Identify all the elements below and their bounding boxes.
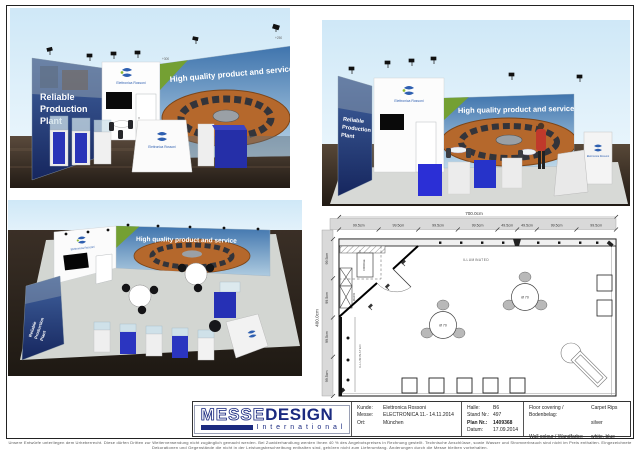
- brand-name: Elettronica Rossoni: [394, 99, 423, 103]
- rack-label: RACK: [352, 293, 356, 301]
- plan-dimensions-top: 700.0cm 99.5cm 99.5cm 99.5cm 99.5cm 49.5…: [330, 211, 618, 232]
- footer-disclaimer: Unsere Entwürfe unterliegen dem Urheberr…: [0, 440, 640, 450]
- render-front-view: Reliable Production Plant Elettronica Ro…: [322, 18, 630, 206]
- logo-text-design: DESIGN: [265, 407, 333, 423]
- plannr-value: 1409368: [493, 420, 512, 427]
- render-birdseye-view: High quality product and service Elettro…: [8, 196, 302, 376]
- monitor: [380, 114, 404, 130]
- logo-bar: [201, 425, 253, 430]
- plan-walls: [339, 239, 616, 396]
- brand-name: Elettronica Rossoni: [148, 145, 176, 149]
- logo-text-messe: MESSE: [201, 407, 266, 423]
- svg-text:99.5cm: 99.5cm: [432, 224, 444, 228]
- illuminated-top-label: ILLUMINATED: [463, 258, 490, 262]
- plan-total-height: 400.0cm: [315, 309, 320, 327]
- floor-covering-value2: silver: [591, 420, 603, 427]
- svg-text:49.5cm: 49.5cm: [501, 224, 513, 228]
- render3-left-white-wall: Elettronica Rossoni: [54, 226, 116, 284]
- svg-text:99.5cm: 99.5cm: [393, 224, 405, 228]
- svg-text:99.5cm: 99.5cm: [325, 292, 329, 304]
- ort-value: München: [383, 420, 404, 427]
- svg-text:99.5cm: 99.5cm: [472, 224, 484, 228]
- brand-name: Elettronica Rossoni: [116, 81, 145, 85]
- svg-text:99.5cm: 99.5cm: [325, 371, 329, 383]
- render2-banner-wall: High quality product and service: [441, 94, 577, 168]
- svg-text:49.5cm: 49.5cm: [521, 224, 533, 228]
- company-logo: MESSEDESIGN I n t e r n a t i o n a l: [193, 402, 352, 436]
- render2-back-wall: Elettronica Rossoni: [374, 78, 444, 172]
- height-label-250: +250: [275, 36, 282, 40]
- svg-text:99.5cm: 99.5cm: [353, 224, 365, 228]
- stand-label: Stand Nr.:: [467, 412, 493, 419]
- halle-label: Halle:: [467, 405, 493, 412]
- fridge-label: FRIDGE: [362, 259, 366, 270]
- messe-label: Messe:: [357, 412, 383, 419]
- logo-text-international: I n t e r n a t i o n a l: [257, 424, 344, 431]
- render1-blue-cube: [198, 124, 247, 168]
- wall-text-line1: Reliable: [40, 92, 75, 102]
- ort-label: Ort:: [357, 420, 383, 427]
- table-diameter-label: Ø 70: [521, 296, 529, 300]
- kunde-value: Elettronica Rossoni: [383, 405, 426, 412]
- svg-text:99.5cm: 99.5cm: [590, 224, 602, 228]
- illuminated-left-label: ILLUMINATED: [358, 344, 362, 368]
- kunde-label: Kunde:: [357, 405, 383, 412]
- monitor: [106, 92, 132, 109]
- door: [96, 254, 112, 284]
- svg-text:99.5cm: 99.5cm: [325, 253, 329, 265]
- plan-total-width: 700.0cm: [465, 211, 483, 216]
- render1-counter: Elettronica Rossoni: [132, 120, 192, 172]
- plan-dimensions-left: 400.0cm 99.5cm 99.5cm 99.5cm 99.5cm: [315, 230, 336, 398]
- titleblock-project-column: Kunde:Elettronica Rossoni Messe:ELECTRON…: [352, 402, 462, 436]
- datum-value: 17.09.2014: [493, 427, 518, 434]
- svg-text:99.5cm: 99.5cm: [325, 331, 329, 343]
- titleblock-materials-column: Floor covering / Bodenbelag:Carpet Rips …: [524, 402, 630, 436]
- height-label-300: +300: [162, 57, 169, 61]
- title-block: MESSEDESIGN I n t e r n a t i o n a l Ku…: [192, 401, 631, 437]
- datum-label: Datum:: [467, 427, 493, 434]
- render2-left-graphic-wall: Reliable Production Plant: [338, 76, 373, 196]
- wall-text-line2: Production: [40, 104, 88, 114]
- render1-vitrines: [50, 116, 111, 166]
- svg-text:99.5cm: 99.5cm: [551, 224, 563, 228]
- floor-plan: 700.0cm 99.5cm 99.5cm 99.5cm 99.5cm 49.5…: [314, 206, 630, 398]
- table-diameter-label: Ø 70: [439, 324, 447, 328]
- stand-value: 497: [493, 412, 501, 419]
- monitor: [63, 253, 89, 271]
- floor-covering-value: Carpet Rips: [591, 405, 617, 420]
- render-perspective-left: Reliable Production Plant Elettronica Ro…: [10, 8, 290, 188]
- brand-name: Elettronica Rossoni: [587, 154, 610, 158]
- floor-covering-label: Floor covering / Bodenbelag:: [529, 405, 591, 420]
- messe-value: ELECTRONICA 11.- 14.11.2014: [383, 412, 454, 419]
- halle-value: B6: [493, 405, 499, 412]
- titleblock-stand-column: Halle:B6 Stand Nr.:497 Plan Nr.:1409368 …: [462, 402, 524, 436]
- plannr-label: Plan Nr.:: [467, 420, 493, 427]
